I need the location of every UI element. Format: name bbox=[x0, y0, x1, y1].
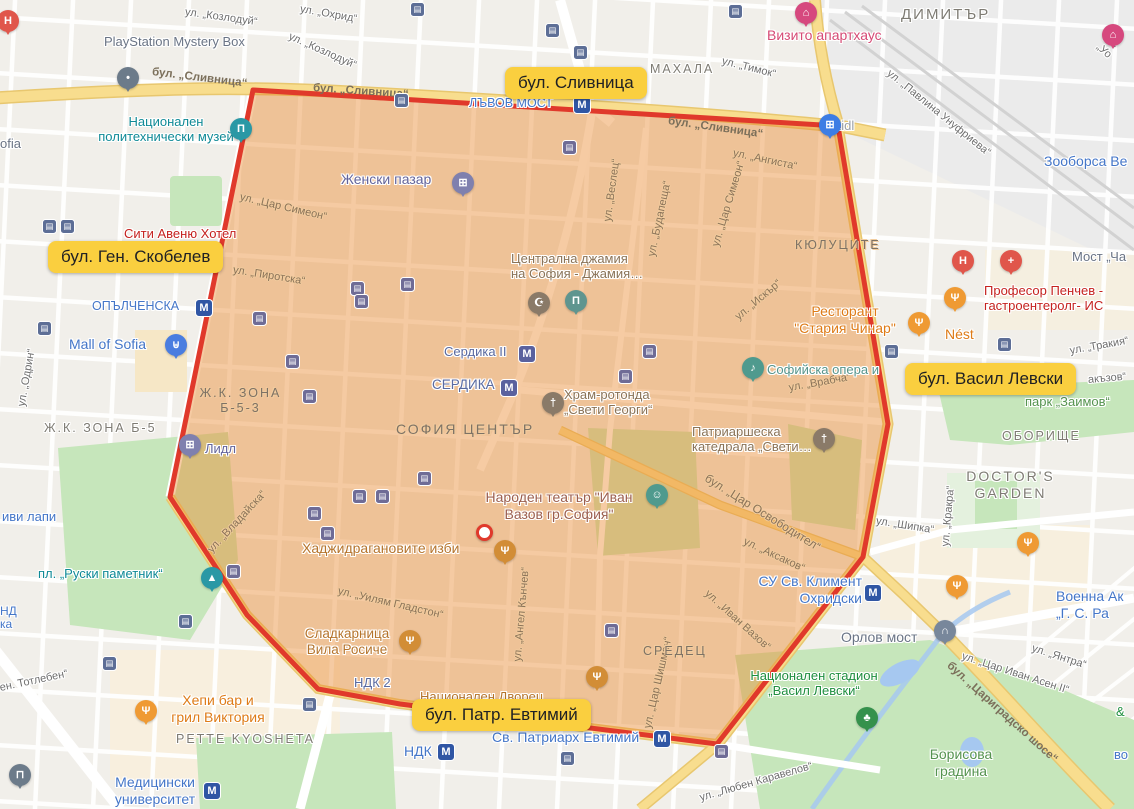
metro-icon[interactable]: М bbox=[518, 345, 536, 363]
tram-icon[interactable]: ▤ bbox=[285, 354, 300, 369]
tram-icon[interactable]: ▤ bbox=[728, 4, 743, 19]
tram-icon[interactable]: ▤ bbox=[354, 294, 369, 309]
poi-label-fragment: ofia bbox=[0, 136, 21, 151]
tram-icon[interactable]: ▤ bbox=[400, 277, 415, 292]
tram-icon[interactable]: ▤ bbox=[562, 140, 577, 155]
poi-label-fragment[interactable]: Мост „Ча bbox=[1072, 249, 1126, 264]
poi-label[interactable]: пл. „Руски паметник“ bbox=[38, 566, 163, 581]
shopping-cart-pin-glyph: ⊞ bbox=[185, 440, 194, 451]
center-marker-dot bbox=[476, 524, 493, 541]
area-label: СОФИЯ ЦЕНТЪР bbox=[396, 421, 534, 438]
area-label: Ж.К. ЗОНА Б-5 bbox=[44, 421, 157, 436]
poi-label[interactable]: Професор Пенчев - гастроентеролг- ИС bbox=[984, 283, 1103, 314]
poi-label[interactable]: Национален стадион „Васил Левски“ bbox=[730, 668, 898, 699]
metro-icon[interactable]: М bbox=[437, 743, 455, 761]
tram-icon[interactable]: ▤ bbox=[997, 337, 1012, 352]
tram-icon[interactable]: ▤ bbox=[37, 321, 52, 336]
museum-pin[interactable]: Π bbox=[565, 290, 587, 312]
poi-label[interactable]: Лидл bbox=[205, 441, 236, 456]
clinic-pin-glyph: + bbox=[1008, 256, 1014, 267]
area-label: DOCTOR'S GARDEN bbox=[958, 468, 1063, 501]
poi-label-fragment: & bbox=[1116, 704, 1125, 719]
metro-station-label[interactable]: Св. Патриарх Евтимий bbox=[492, 729, 639, 746]
museum-pin-glyph: Π bbox=[572, 296, 580, 307]
tram-icon[interactable]: ▤ bbox=[226, 564, 241, 579]
tram-icon[interactable]: ▤ bbox=[884, 344, 899, 359]
poi-label[interactable]: Патриаршеска катедрала „Свети… bbox=[692, 424, 812, 455]
bridge-pin-glyph: ∩ bbox=[941, 626, 949, 637]
poi-label[interactable]: Визито апартхаус bbox=[767, 27, 882, 44]
tram-icon[interactable]: ▤ bbox=[307, 506, 322, 521]
restaurant-pin-glyph: Ψ bbox=[406, 636, 415, 647]
restaurant-pin[interactable]: Ψ bbox=[946, 575, 968, 597]
mosque-pin-glyph: ☪ bbox=[534, 298, 544, 309]
shopping-bag-pin[interactable]: ⊎ bbox=[165, 334, 187, 356]
church-pin[interactable]: † bbox=[542, 392, 564, 414]
church-pin[interactable]: † bbox=[813, 428, 835, 450]
metro-icon[interactable]: М bbox=[653, 730, 671, 748]
tram-icon[interactable]: ▤ bbox=[302, 697, 317, 712]
poi-label[interactable]: Централна джамия на София - Джамия… bbox=[511, 251, 643, 282]
monument-pin[interactable]: ▲ bbox=[201, 567, 223, 589]
stadium-pin[interactable]: ♣ bbox=[856, 707, 878, 729]
restaurant-pin-glyph: Ψ bbox=[501, 546, 510, 557]
tram-icon[interactable]: ▤ bbox=[375, 489, 390, 504]
poi-label[interactable]: Народен театър "Иван Вазов гр.София" bbox=[468, 489, 650, 522]
callout-vasil-levski[interactable]: бул. Васил Левски bbox=[905, 363, 1076, 395]
restaurant-pin-glyph: Ψ bbox=[915, 318, 924, 329]
restaurant-pin-glyph: Ψ bbox=[142, 706, 151, 717]
restaurant-pin-glyph: Ψ bbox=[953, 581, 962, 592]
metro-icon[interactable]: М bbox=[864, 584, 882, 602]
church-pin-glyph: † bbox=[821, 434, 827, 445]
area-label: PETTE KYOSHETA bbox=[176, 732, 315, 747]
restaurant-pin[interactable]: Ψ bbox=[135, 700, 157, 722]
poi-label[interactable]: Женски пазар bbox=[341, 171, 431, 188]
poi-label[interactable]: Софийска опера и bbox=[767, 362, 879, 377]
tram-icon[interactable]: ▤ bbox=[302, 389, 317, 404]
church-pin-glyph: † bbox=[550, 398, 556, 409]
theater-pin-glyph: ☺ bbox=[651, 490, 662, 501]
tram-icon[interactable]: ▤ bbox=[618, 369, 633, 384]
tram-icon[interactable]: ▤ bbox=[604, 623, 619, 638]
shopping-bag-pin-glyph: ⊎ bbox=[172, 340, 180, 351]
poi-label-fragment[interactable]: Зооборса Ве bbox=[1044, 153, 1127, 170]
theater-pin[interactable]: ☺ bbox=[646, 484, 668, 506]
university-pin[interactable]: ⊓ bbox=[9, 764, 31, 786]
tram-icon[interactable]: ▤ bbox=[714, 744, 729, 759]
metro-icon[interactable]: М bbox=[195, 299, 213, 317]
opera-pin-glyph: ♪ bbox=[750, 363, 756, 374]
restaurant-pin[interactable]: Ψ bbox=[908, 312, 930, 334]
metro-icon[interactable]: М bbox=[203, 782, 221, 800]
metro-station-label[interactable]: СЕРДИКА bbox=[432, 377, 495, 393]
area-label: Ж.К. ЗОНА Б-5-3 bbox=[193, 386, 288, 416]
shopping-cart-pin[interactable]: ⊞ bbox=[819, 114, 841, 136]
tram-icon[interactable]: ▤ bbox=[42, 219, 57, 234]
tram-icon[interactable]: ▤ bbox=[102, 656, 117, 671]
metro-icon[interactable]: М bbox=[500, 379, 518, 397]
metro-station-label[interactable]: СУ Св. Климент Охридски bbox=[747, 573, 862, 606]
area-label: СРЕДЕЦ bbox=[643, 644, 707, 659]
callout-slivnitsa[interactable]: бул. Сливница bbox=[505, 67, 647, 99]
restaurant-pin-glyph: Ψ bbox=[951, 293, 960, 304]
restaurant-pin[interactable]: Ψ bbox=[494, 540, 516, 562]
poi-label-fragment[interactable]: иви лапи bbox=[2, 509, 56, 524]
hospital-pin[interactable]: H bbox=[952, 250, 974, 272]
tram-icon[interactable]: ▤ bbox=[560, 751, 575, 766]
metro-station-label[interactable]: ОПЪЛЧЕНСКА bbox=[92, 299, 179, 314]
poi-label[interactable]: Сладкарница Вила Росиче bbox=[297, 626, 397, 658]
park-label[interactable]: парк „Заимов“ bbox=[1025, 394, 1110, 409]
poi-label[interactable]: Храм-ротонда „Свети Георги“ bbox=[564, 387, 652, 418]
shop-pin-glyph: • bbox=[126, 73, 130, 84]
restaurant-pin-glyph: Ψ bbox=[593, 672, 602, 683]
poi-label[interactable]: Национален политехнически музей bbox=[96, 114, 236, 145]
shopping-cart-pin-glyph: ⊞ bbox=[825, 120, 834, 131]
shopping-cart-pin[interactable]: ⊞ bbox=[452, 172, 474, 194]
park-label[interactable]: Борисова градина bbox=[922, 746, 1000, 779]
hotel-pin-glyph: H bbox=[4, 16, 12, 27]
callout-patr-evtimiy[interactable]: бул. Патр. Евтимий bbox=[412, 699, 591, 731]
tram-icon[interactable]: ▤ bbox=[252, 311, 267, 326]
metro-station-label[interactable]: Сердика II bbox=[444, 344, 506, 359]
area-label: ОБОРИЩЕ bbox=[1002, 429, 1081, 444]
museum-pin-glyph: Π bbox=[237, 124, 245, 135]
poi-label[interactable]: Медицински университет bbox=[109, 774, 201, 807]
restaurant-pin[interactable]: Ψ bbox=[1017, 532, 1039, 554]
restaurant-pin[interactable]: Ψ bbox=[944, 287, 966, 309]
tram-icon[interactable]: ▤ bbox=[642, 344, 657, 359]
mosque-pin[interactable]: ☪ bbox=[528, 292, 550, 314]
tram-icon[interactable]: ▤ bbox=[320, 526, 335, 541]
hotel-bed-pin[interactable]: ⌂ bbox=[795, 2, 817, 24]
shopping-cart-pin[interactable]: ⊞ bbox=[179, 434, 201, 456]
poi-label[interactable]: Mall of Sofia bbox=[69, 336, 146, 353]
poi-label-fragment[interactable]: Военна Ак „Г. С. Ра bbox=[1056, 588, 1124, 621]
tram-icon[interactable]: ▤ bbox=[178, 614, 193, 629]
poi-label[interactable]: Орлов мост bbox=[841, 629, 917, 646]
poi-label[interactable]: Хепи бар и грил Виктория bbox=[162, 692, 274, 725]
tram-icon[interactable]: ▤ bbox=[410, 2, 425, 17]
opera-pin[interactable]: ♪ bbox=[742, 357, 764, 379]
poi-label-fragment: ка bbox=[0, 617, 12, 631]
poi-label[interactable]: PlayStation Mystery Box bbox=[104, 34, 245, 49]
hotel-bed-pin-glyph: ⌂ bbox=[803, 8, 810, 19]
shop-pin[interactable]: • bbox=[117, 67, 139, 89]
tram-icon[interactable]: ▤ bbox=[545, 23, 560, 38]
area-label: КЮЛУЦИТЕ bbox=[795, 238, 881, 253]
hospital-pin-glyph: H bbox=[959, 256, 967, 267]
poi-label[interactable]: Сити Авеню Хотел bbox=[124, 226, 236, 241]
university-pin-glyph: ⊓ bbox=[16, 770, 25, 781]
metro-station-label[interactable]: НДК 2 bbox=[354, 675, 391, 690]
shopping-cart-pin-glyph: ⊞ bbox=[458, 178, 467, 189]
poi-label[interactable]: Ресторант "Стария Чинар" bbox=[788, 303, 902, 336]
poi-label[interactable]: Nést bbox=[945, 326, 974, 343]
clinic-pin[interactable]: + bbox=[1000, 250, 1022, 272]
bridge-pin[interactable]: ∩ bbox=[934, 620, 956, 642]
hotel-bed-pin-glyph: ⌂ bbox=[1110, 30, 1117, 41]
restaurant-pin[interactable]: Ψ bbox=[399, 630, 421, 652]
area-label: МАХАЛА bbox=[650, 62, 714, 77]
area-label: ДИМИТЪР bbox=[901, 6, 990, 24]
callout-skobelev[interactable]: бул. Ген. Скобелев bbox=[48, 241, 223, 273]
tram-icon[interactable]: ▤ bbox=[573, 45, 588, 60]
museum-pin[interactable]: Π bbox=[230, 118, 252, 140]
poi-label[interactable]: Хаджидрагановите изби bbox=[302, 540, 459, 557]
tram-icon[interactable]: ▤ bbox=[417, 471, 432, 486]
tram-icon[interactable]: ▤ bbox=[352, 489, 367, 504]
tram-icon[interactable]: ▤ bbox=[60, 219, 75, 234]
monument-pin-glyph: ▲ bbox=[207, 573, 218, 584]
poi-label-fragment: во bbox=[1114, 747, 1128, 762]
restaurant-pin-glyph: Ψ bbox=[1024, 538, 1033, 549]
metro-station-label[interactable]: НДК bbox=[404, 743, 432, 760]
map-canvas[interactable]: ул. „Козлодуй“ул. „Охрид“ул. „Козлодуй“у… bbox=[0, 0, 1134, 809]
stadium-pin-glyph: ♣ bbox=[863, 713, 870, 724]
hotel-bed-pin[interactable]: ⌂ bbox=[1102, 24, 1124, 46]
restaurant-pin[interactable]: Ψ bbox=[586, 666, 608, 688]
tram-icon[interactable]: ▤ bbox=[394, 93, 409, 108]
